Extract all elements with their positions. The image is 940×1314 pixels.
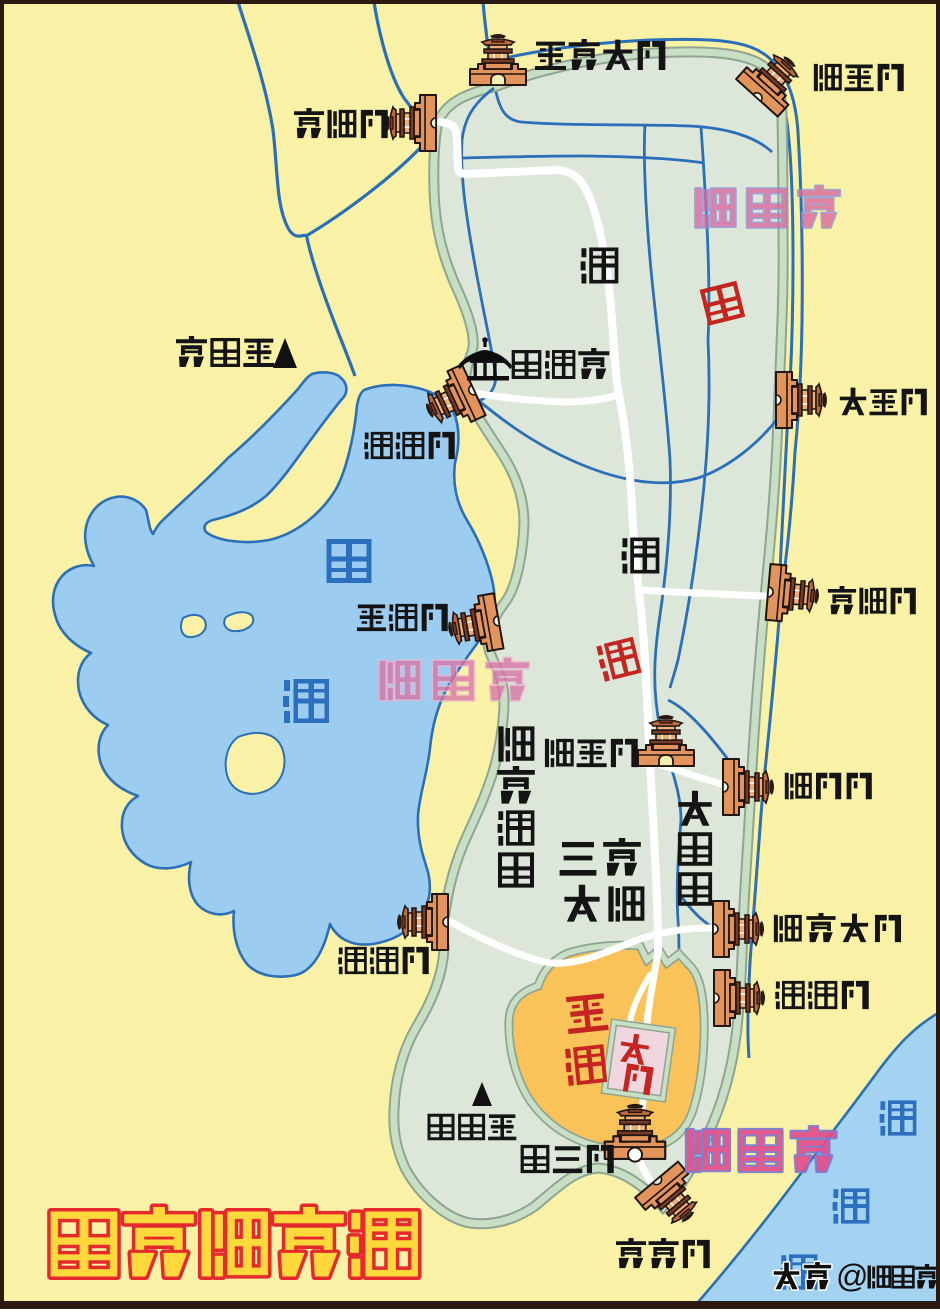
svg-text:@: @ bbox=[836, 1258, 868, 1294]
